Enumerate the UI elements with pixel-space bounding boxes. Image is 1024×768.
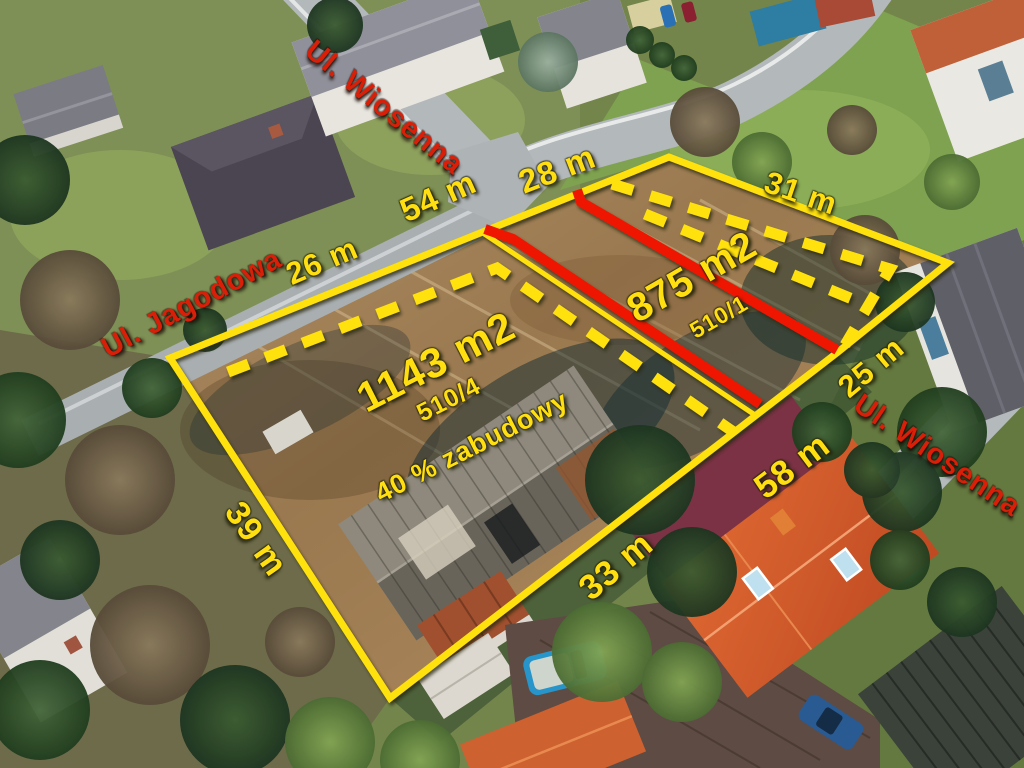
plot-annotation-lines bbox=[0, 0, 1024, 768]
plot-boundary-outline bbox=[170, 157, 948, 698]
aerial-photo: Ul. Wiosenna Ul. Jagodowa Ul. Wiosenna 2… bbox=[0, 0, 1024, 768]
setback-dashed-line-northeast bbox=[612, 184, 890, 345]
division-line-yellow bbox=[483, 233, 755, 415]
red-division-line-west bbox=[485, 229, 760, 404]
